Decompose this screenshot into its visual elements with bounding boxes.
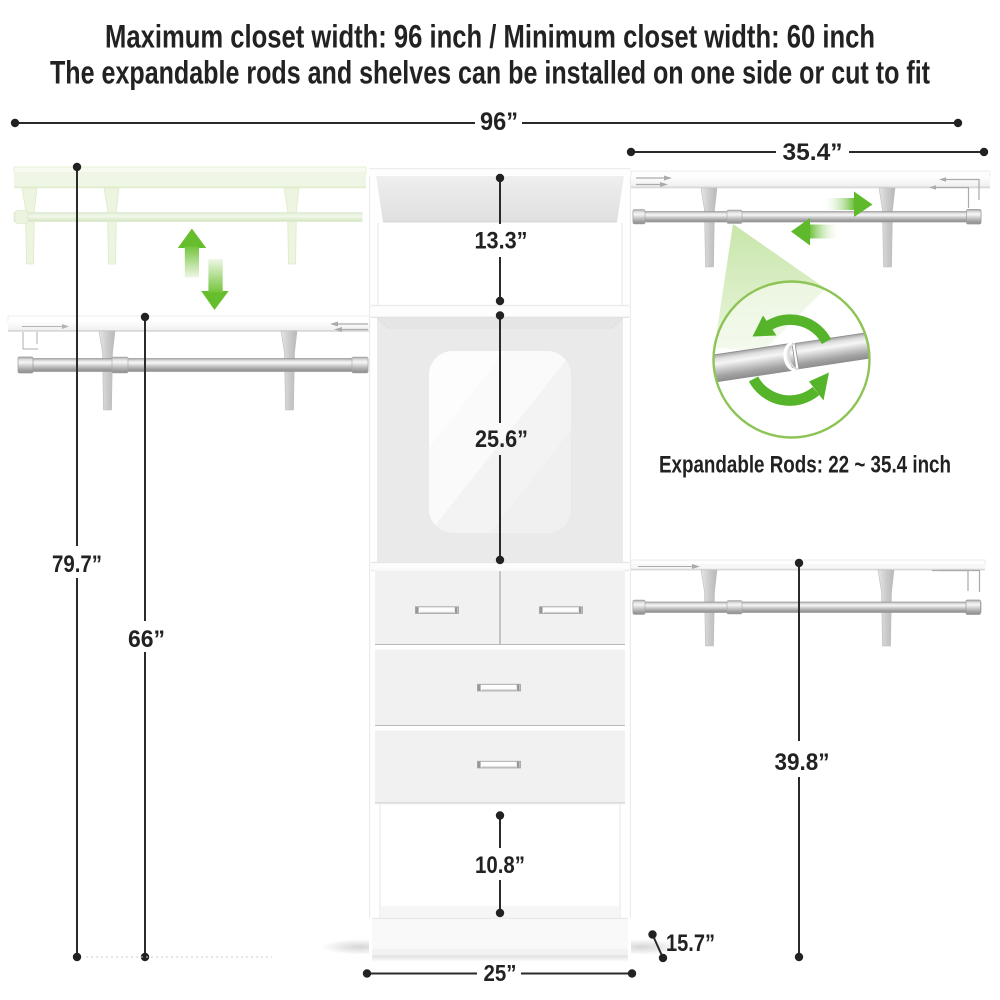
svg-text:96”: 96” <box>480 108 518 136</box>
svg-text:15.7”: 15.7” <box>666 930 715 957</box>
svg-text:79.7”: 79.7” <box>52 551 102 578</box>
svg-text:10.8”: 10.8” <box>475 852 525 879</box>
svg-text:Maximum closet width: 96 inch: Maximum closet width: 96 inch / Minimum … <box>105 19 875 55</box>
svg-text:13.3”: 13.3” <box>475 228 528 255</box>
svg-text:39.8”: 39.8” <box>775 749 830 776</box>
svg-text:66”: 66” <box>128 626 165 653</box>
svg-text:25.6”: 25.6” <box>475 426 528 453</box>
svg-text:35.4”: 35.4” <box>783 139 843 166</box>
svg-text:Expandable Rods: 22 ~ 35.4 inc: Expandable Rods: 22 ~ 35.4 inch <box>659 452 951 479</box>
svg-text:The expandable rods and shelve: The expandable rods and shelves can be i… <box>50 55 930 91</box>
svg-text:25”: 25” <box>484 960 517 986</box>
